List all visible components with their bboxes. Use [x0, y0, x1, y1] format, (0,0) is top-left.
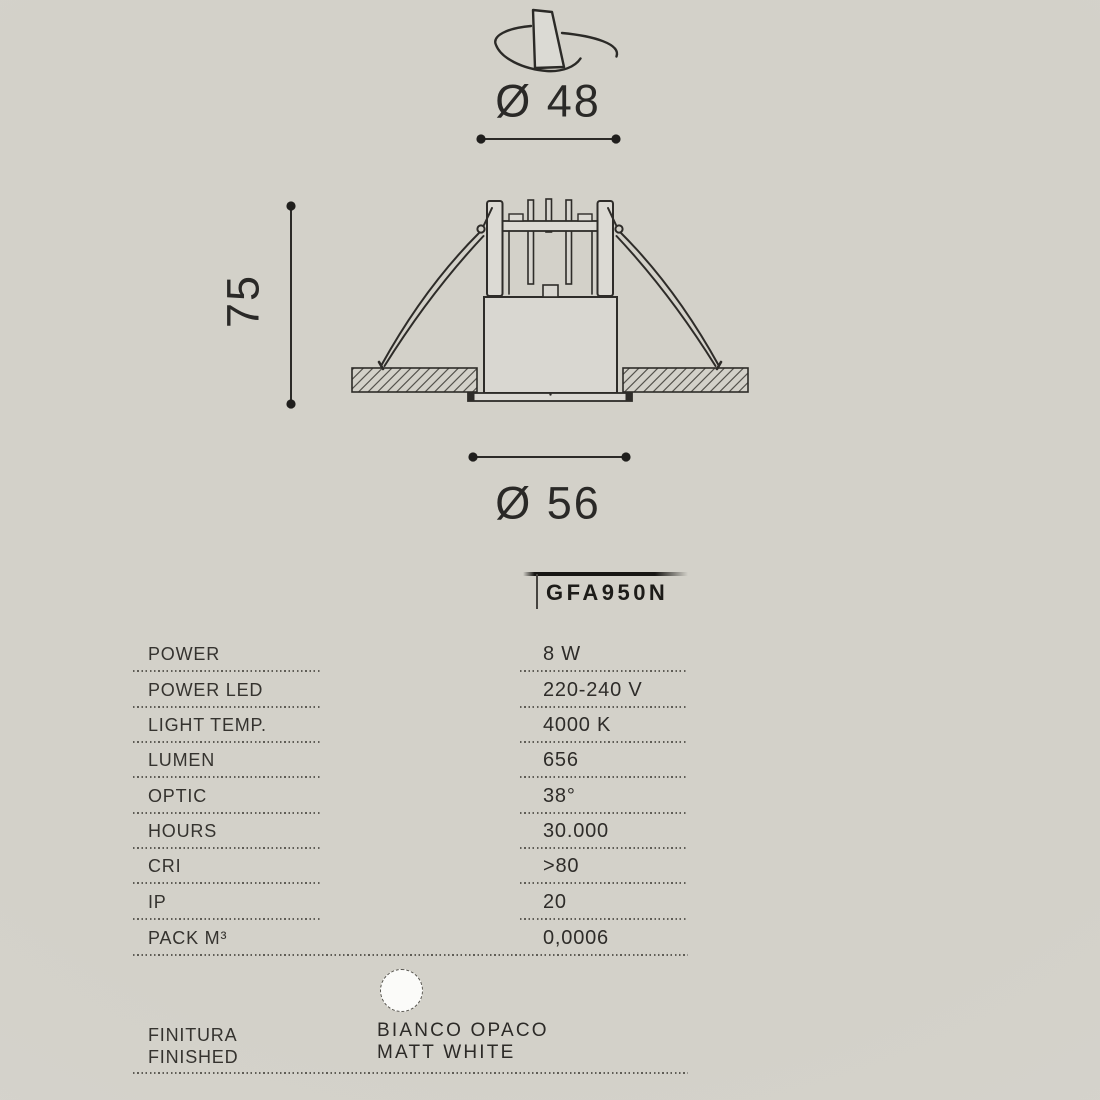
spec-value: 30.000	[543, 820, 609, 843]
ceiling-hatch-left	[352, 368, 477, 392]
table-row-optic: OPTIC 38°	[133, 781, 688, 814]
spec-value: 20	[543, 891, 567, 914]
diameter-48-label: Ø 48	[495, 76, 601, 127]
table-row-power: POWER 8 W	[133, 639, 688, 672]
finish-label: FINITURA FINISHED	[148, 1024, 238, 1068]
height-75-label: 75	[218, 274, 269, 328]
table-row-power-led: POWER LED 220-240 V	[133, 675, 688, 708]
spec-value: 4000 K	[543, 714, 611, 737]
spec-value: 0,0006	[543, 927, 609, 950]
spec-label: OPTIC	[148, 786, 207, 807]
spec-label: HOURS	[148, 821, 217, 842]
table-row-ip: IP 20	[133, 887, 688, 920]
row-divider	[520, 847, 688, 849]
cross-bar	[487, 221, 613, 231]
spec-value: 38°	[543, 785, 576, 808]
spec-label: IP	[148, 892, 167, 913]
table-row-light-temp: LIGHT TEMP. 4000 K	[133, 710, 688, 743]
product-code: GFA950N	[546, 580, 668, 606]
finish-label-it: FINITURA	[148, 1024, 238, 1046]
body-notch	[543, 285, 558, 297]
spec-label: LUMEN	[148, 750, 215, 771]
diameter-56-dimension: Ø 56	[468, 452, 630, 528]
spec-label: PACK M³	[148, 928, 227, 949]
finish-value-it: BIANCO OPACO	[377, 1020, 549, 1042]
row-divider	[133, 670, 322, 672]
row-divider	[520, 706, 688, 708]
row-divider	[133, 812, 322, 814]
table-row-cri: CRI >80	[133, 851, 688, 884]
finish-value-en: MATT WHITE	[377, 1042, 549, 1064]
spec-value: 220-240 V	[543, 679, 643, 702]
spec-label: POWER	[148, 644, 220, 665]
spec-label: POWER LED	[148, 680, 263, 701]
table-row-pack: PACK M³ 0,0006	[133, 923, 688, 956]
diameter-56-label: Ø 56	[495, 478, 601, 529]
spec-label: LIGHT TEMP.	[148, 715, 267, 736]
row-divider	[520, 670, 688, 672]
spring-clip-right	[608, 208, 721, 369]
row-divider	[520, 776, 688, 778]
spec-value: >80	[543, 855, 579, 878]
finish-value: BIANCO OPACO MATT WHITE	[377, 1020, 549, 1064]
spec-value: 656	[543, 749, 579, 772]
row-divider	[133, 776, 322, 778]
technical-drawing: Ø 48 75	[0, 0, 1100, 530]
table-row-lumen: LUMEN 656	[133, 745, 688, 778]
section-divider	[133, 1072, 688, 1074]
fixture-body	[484, 297, 617, 393]
row-divider	[133, 954, 688, 956]
row-divider	[133, 741, 322, 743]
row-divider	[520, 882, 688, 884]
product-icon	[495, 10, 617, 71]
height-75-dimension: 75	[218, 201, 296, 408]
spring-clip-left	[379, 208, 492, 369]
row-divider	[133, 882, 322, 884]
finish-label-en: FINISHED	[148, 1046, 238, 1068]
row-divider	[520, 741, 688, 743]
row-divider	[133, 918, 322, 920]
spec-label: CRI	[148, 856, 181, 877]
row-divider	[133, 706, 322, 708]
product-code-rule	[523, 572, 688, 576]
product-code-tick	[536, 574, 538, 609]
row-divider	[133, 847, 322, 849]
ceiling-hatch-right	[623, 368, 748, 392]
diameter-48-dimension: Ø 48	[476, 76, 620, 144]
matt-white-color-swatch	[380, 969, 423, 1012]
pin-right	[566, 200, 572, 284]
fixture-cross-section	[352, 199, 748, 401]
row-divider	[520, 918, 688, 920]
datasheet-page: Ø 48 75	[0, 0, 1100, 1100]
spec-value: 8 W	[543, 643, 581, 666]
pin-left	[528, 200, 534, 284]
row-divider	[520, 812, 688, 814]
table-row-hours: HOURS 30.000	[133, 816, 688, 849]
